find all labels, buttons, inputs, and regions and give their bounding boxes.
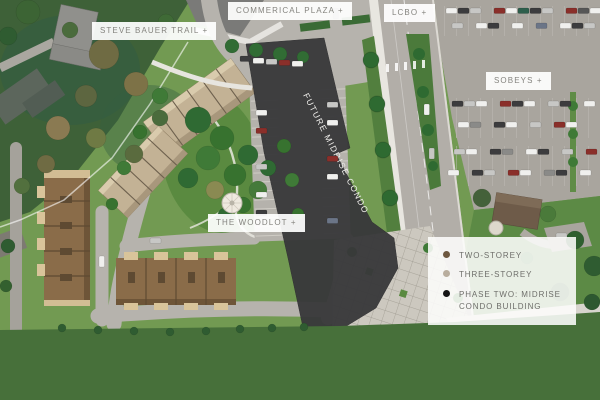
legend-label-phase-two-midrise: PHASE TWO: MIDRISE CONDO BUILDING	[459, 289, 568, 314]
label-commerical-plaza[interactable]: COMMERICAL PLAZA +	[228, 2, 352, 20]
label-steve-bauer-trail[interactable]: STEVE BAUER TRAIL +	[92, 22, 216, 40]
label-lcbo[interactable]: LCBO +	[384, 4, 435, 22]
legend-item-two-storey: TWO-STOREY	[443, 250, 568, 262]
aerial-site-plan-map: FUTURE MIDRISE CONDO	[0, 0, 600, 400]
legend-dot-phase-two-midrise	[443, 290, 450, 297]
legend-dot-two-storey	[443, 251, 450, 258]
greenbelt-band	[0, 312, 600, 400]
legend-label-two-storey: TWO-STOREY	[459, 250, 522, 262]
label-sobeys[interactable]: SOBEYS +	[486, 72, 551, 90]
label-the-woodlot[interactable]: THE WOODLOT +	[208, 214, 305, 232]
legend: TWO-STOREY THREE-STOREY PHASE TWO: MIDRI…	[428, 237, 576, 325]
legend-item-phase-two-midrise: PHASE TWO: MIDRISE CONDO BUILDING	[443, 289, 568, 314]
legend-item-three-storey: THREE-STOREY	[443, 269, 568, 281]
gazebo	[222, 193, 242, 213]
site-plan: FUTURE MIDRISE CONDO	[0, 0, 600, 400]
legend-dot-three-storey	[443, 270, 450, 277]
gazebo-small	[489, 221, 503, 235]
legend-label-three-storey: THREE-STOREY	[459, 269, 532, 281]
